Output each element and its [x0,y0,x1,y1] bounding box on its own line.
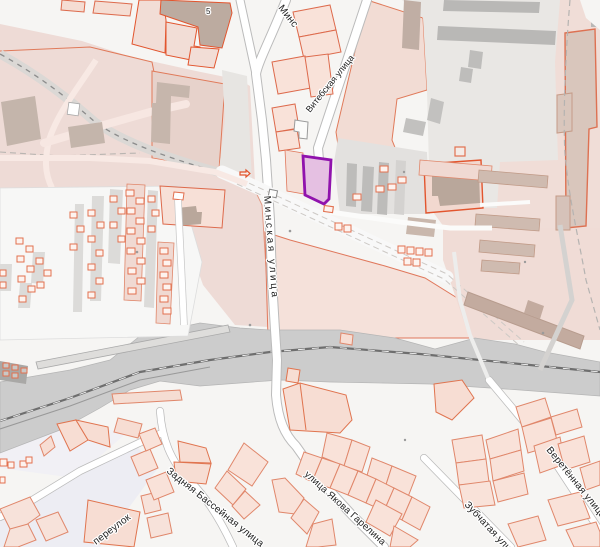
svg-text:5: 5 [206,7,211,16]
